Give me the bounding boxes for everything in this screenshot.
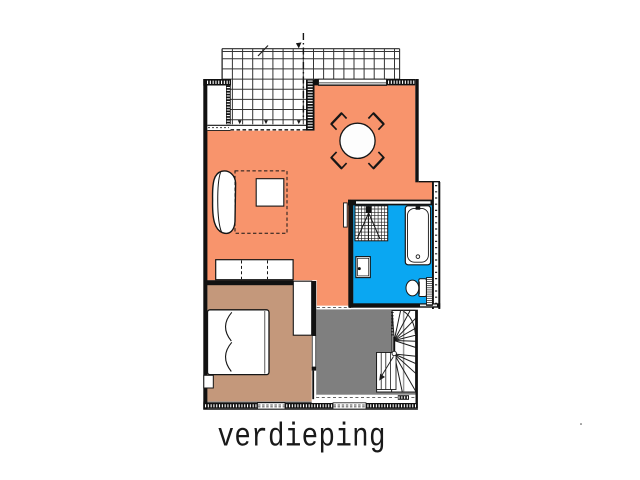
svg-text:verdieping: verdieping bbox=[217, 418, 385, 456]
